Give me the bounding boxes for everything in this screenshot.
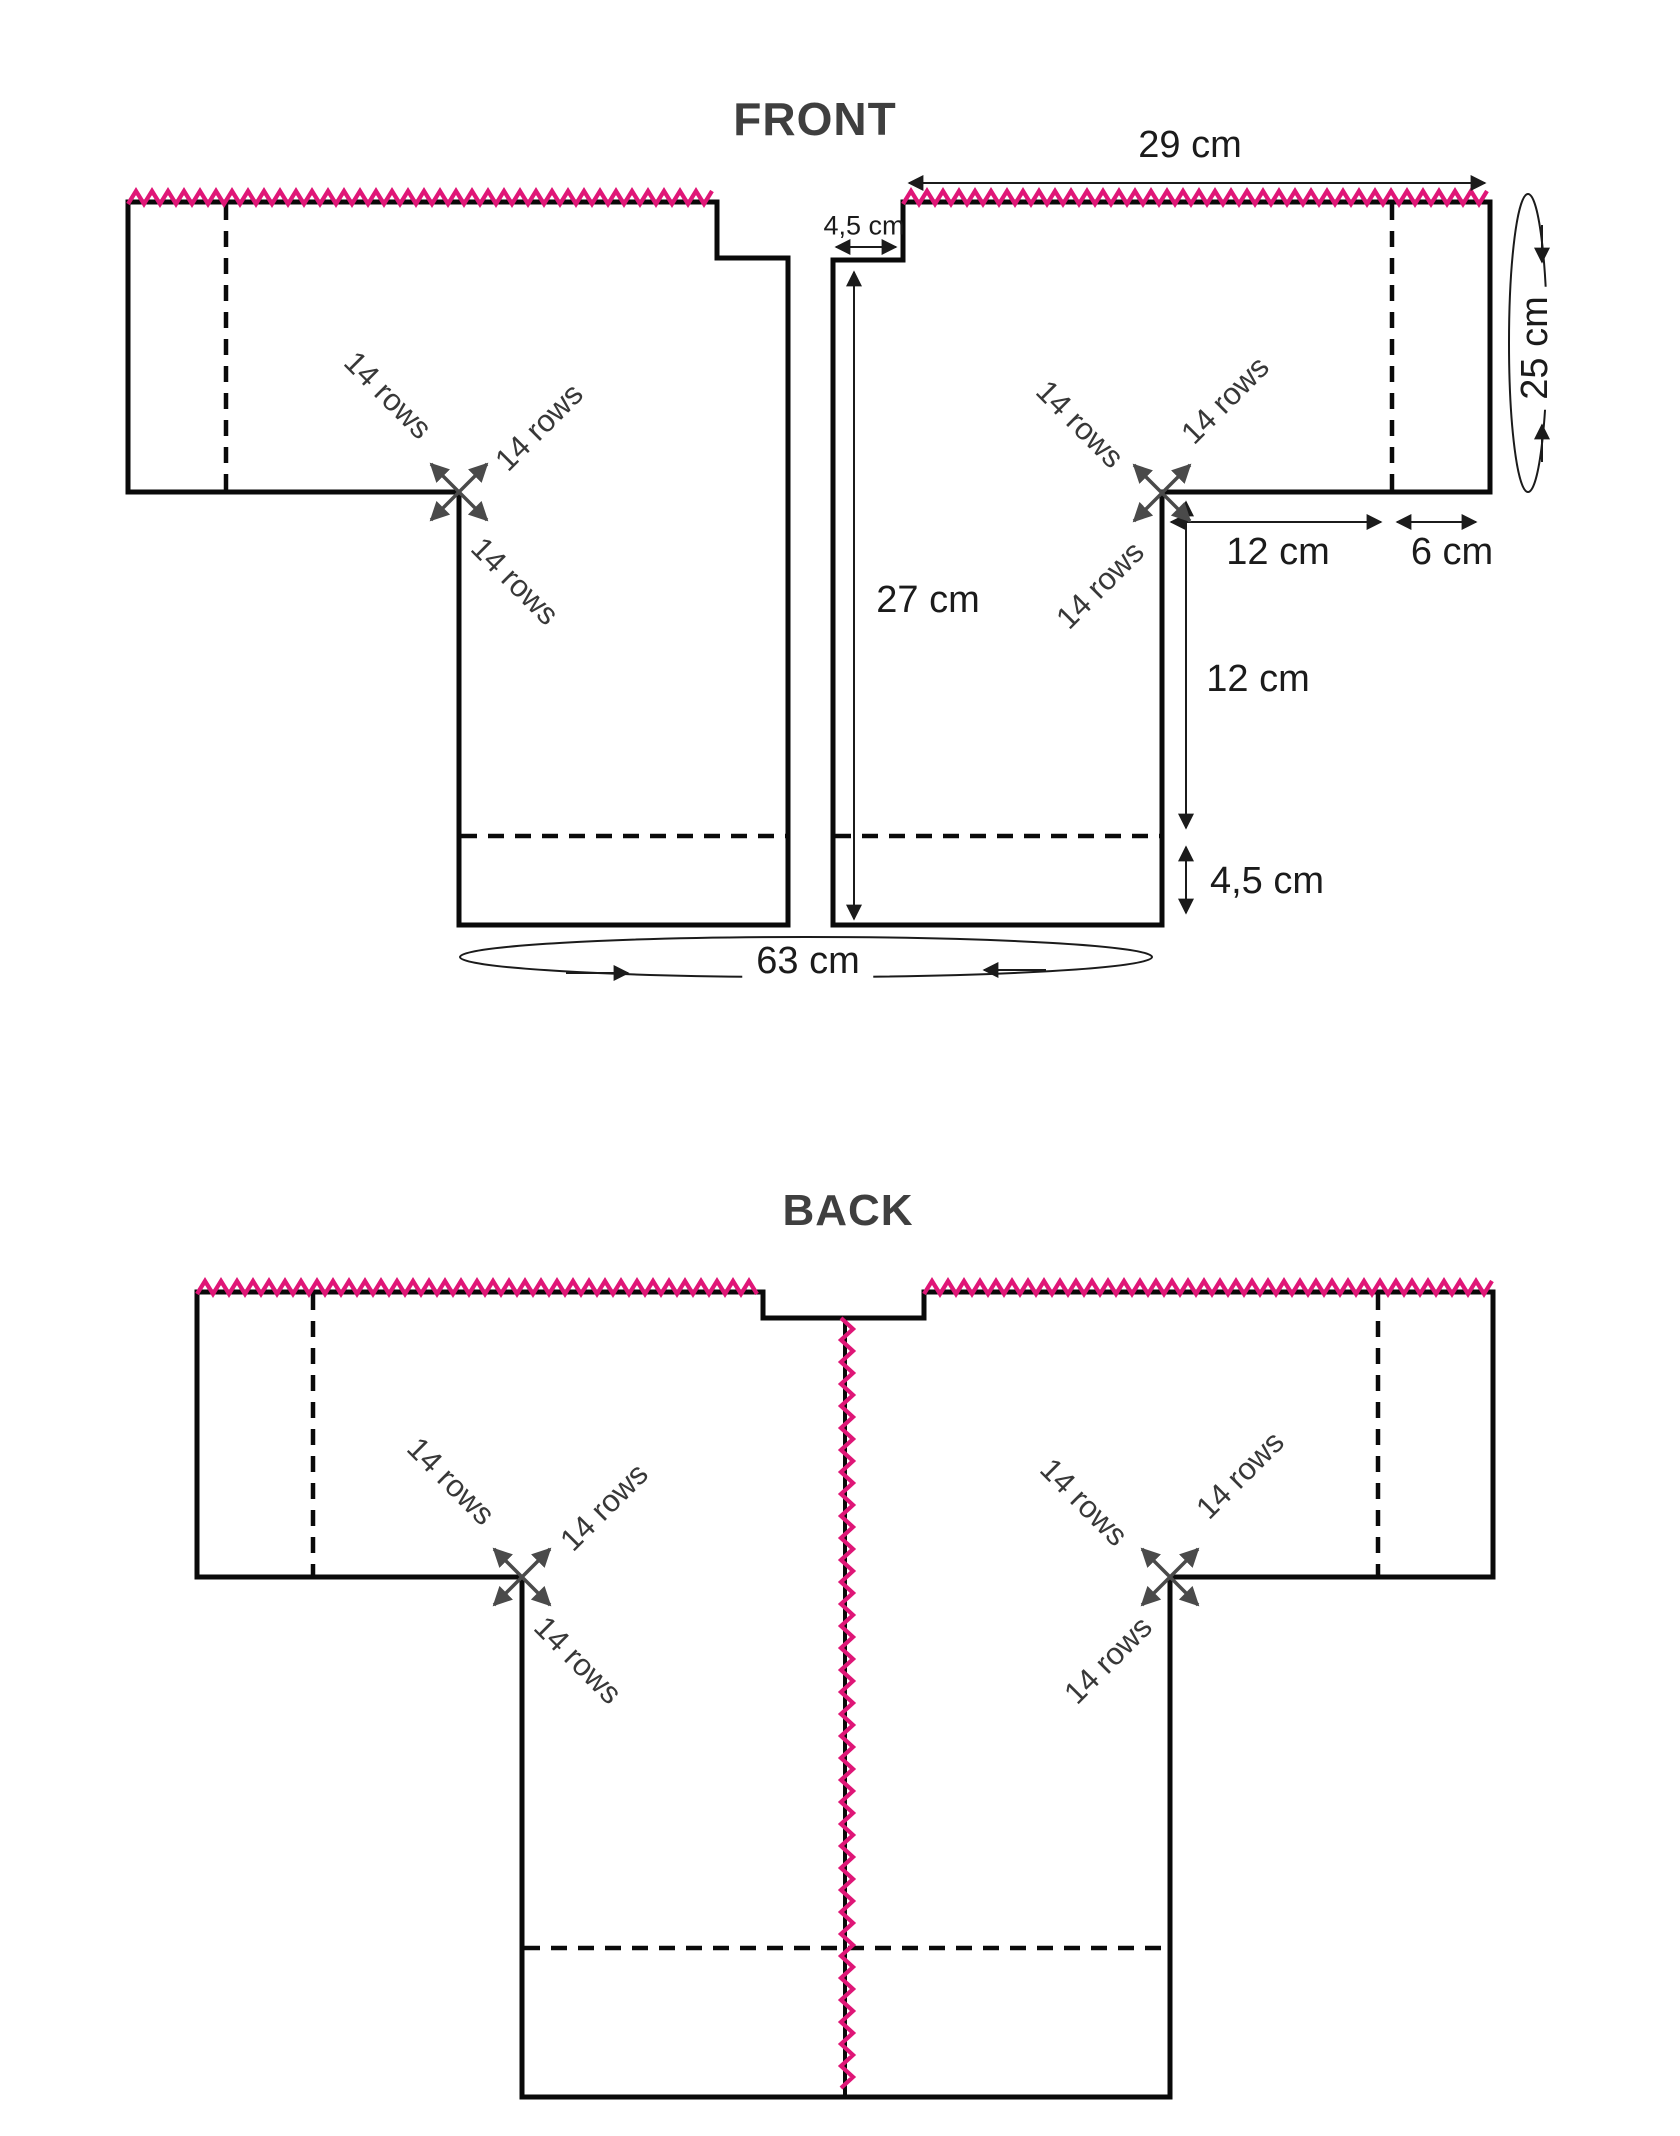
dim-label-4-5cm-neck: 4,5 cm [823, 213, 904, 240]
dim-label-4-5cm-hem: 4,5 cm [1210, 862, 1324, 900]
dim-label-25cm: 25 cm [1514, 286, 1556, 409]
dim-label-27cm: 27 cm [876, 581, 979, 619]
pattern-drawing [0, 0, 1680, 2136]
dim-label-12cm-underarm: 12 cm [1226, 533, 1329, 571]
front-title: FRONT [733, 96, 896, 142]
dim-label-29cm: 29 cm [1138, 126, 1241, 164]
back-title: BACK [782, 1189, 913, 1233]
pattern-diagram: FRONT BACK 29 cm 4,5 cm 27 cm 12 cm 6 cm… [0, 0, 1680, 2136]
dim-label-6cm: 6 cm [1411, 533, 1493, 571]
dim-label-63cm: 63 cm [742, 940, 873, 982]
front-left-piece-outline [128, 202, 788, 925]
front-right-piece-outline [833, 202, 1490, 925]
dim-label-12cm-side: 12 cm [1206, 660, 1309, 698]
